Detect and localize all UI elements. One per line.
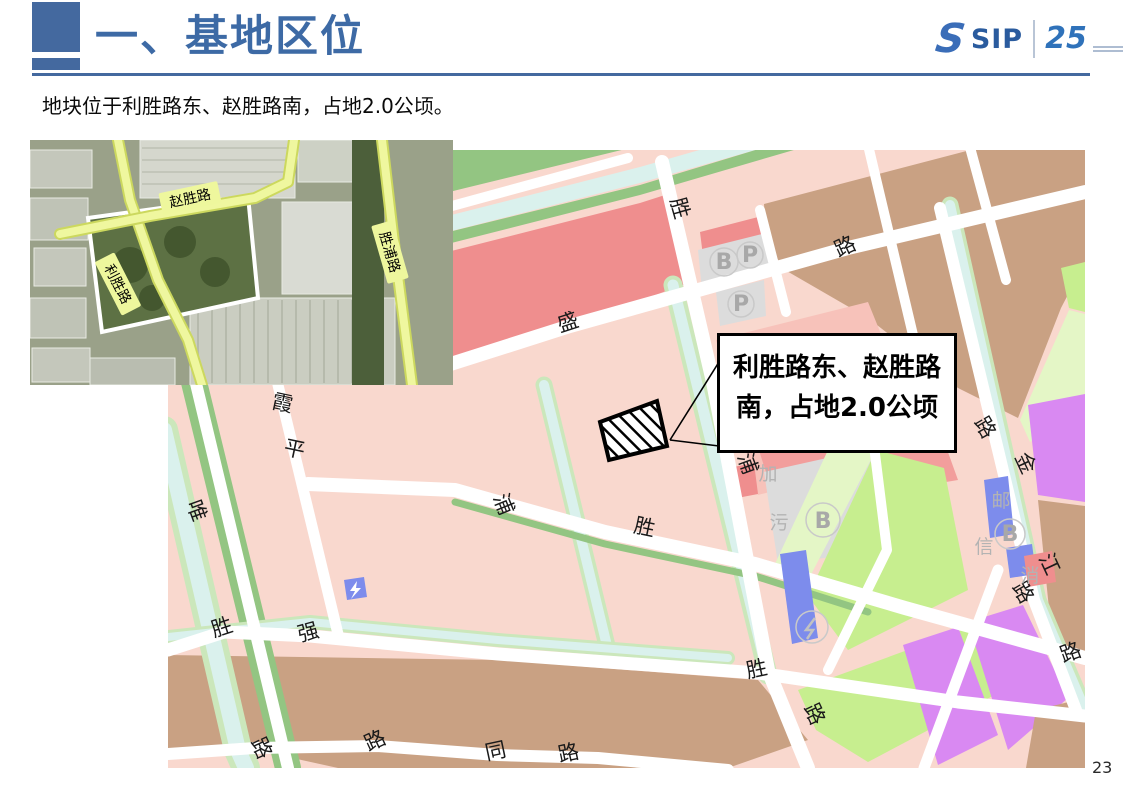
building xyxy=(34,248,86,286)
map-poi-label: 邮 xyxy=(991,490,1010,512)
building xyxy=(32,348,90,382)
map-badge-letter: B xyxy=(1002,522,1019,547)
building xyxy=(30,298,86,338)
anniversary-25-mark: 25 xyxy=(1045,24,1087,54)
slide: 一、基地区位 S SIP 25 地块位于利胜路东、赵胜路南，占地2.0公顷。 胜… xyxy=(0,0,1123,794)
building xyxy=(30,150,92,188)
map-poi-label: 加 xyxy=(758,463,777,485)
page-number: 23 xyxy=(1092,758,1112,777)
river-greenbelt xyxy=(352,140,384,385)
map-poi-label: 污 xyxy=(769,512,788,534)
callout-line1: 利胜路东、赵胜路 xyxy=(733,353,941,383)
map-poi-label: 信 xyxy=(974,536,993,558)
map-badge-letter: P xyxy=(733,292,749,317)
title-decoration-bar xyxy=(32,58,80,70)
satellite-image: 赵胜路利胜路胜浦路 xyxy=(30,140,453,385)
logo-tagline-bars xyxy=(1093,46,1123,52)
page-title: 一、基地区位 xyxy=(95,2,365,64)
tree-cluster xyxy=(164,226,196,258)
callout-line2: 南，占地2.0公顷 xyxy=(736,393,938,423)
map-badge-letter: P xyxy=(742,243,758,268)
sip-swoosh-icon: S xyxy=(933,19,967,59)
sip-brand-text: SIP xyxy=(971,24,1023,55)
map-poi-label: 消 xyxy=(1020,565,1039,587)
title-decoration-square xyxy=(32,2,80,52)
building xyxy=(90,358,175,385)
slide-subtitle: 地块位于利胜路东、赵胜路南，占地2.0公顷。 xyxy=(42,90,454,119)
title-underline xyxy=(32,73,1090,76)
site-callout: 利胜路东、赵胜路 南，占地2.0公顷 xyxy=(717,333,957,453)
sip-logo: S SIP 25 xyxy=(936,14,1123,64)
map-badge-letter: B xyxy=(716,250,733,275)
tree-cluster xyxy=(200,257,230,287)
map-badge-letter: B xyxy=(815,509,832,534)
logo-divider xyxy=(1033,20,1035,58)
